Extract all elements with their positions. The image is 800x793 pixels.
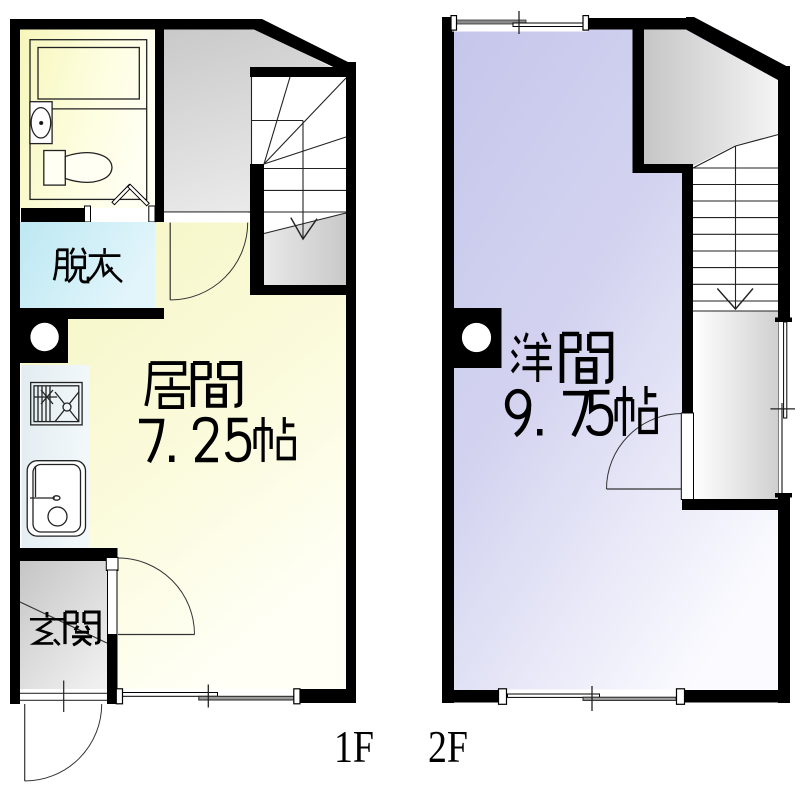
svg-text:1F: 1F (334, 721, 374, 772)
svg-text:2F: 2F (428, 721, 468, 772)
